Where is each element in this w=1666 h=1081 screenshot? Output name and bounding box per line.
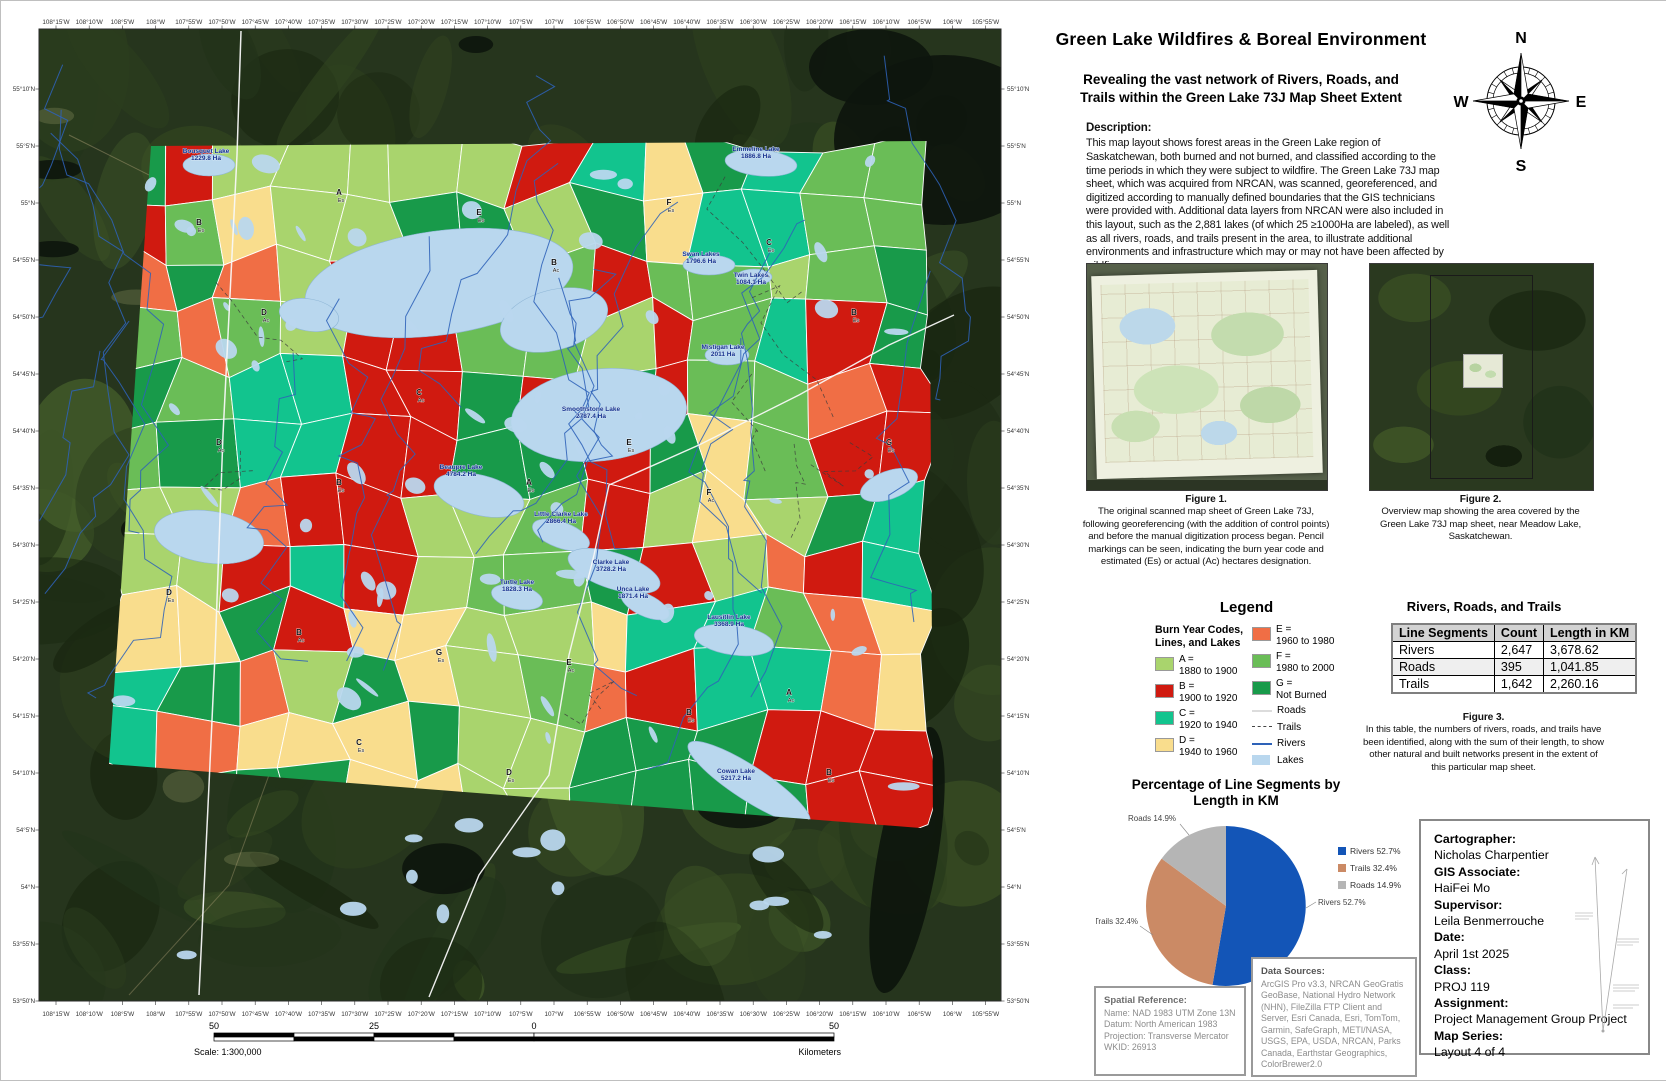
spatial-reference-line: Datum: North American 1983 xyxy=(1104,1019,1236,1030)
svg-text:E: E xyxy=(566,658,572,667)
svg-text:54°10'N: 54°10'N xyxy=(13,769,36,777)
svg-text:106°10'W: 106°10'W xyxy=(872,18,899,26)
svg-text:54°20'N: 54°20'N xyxy=(1007,655,1030,663)
svg-text:50: 50 xyxy=(209,1021,219,1031)
svg-text:E: E xyxy=(626,438,632,447)
svg-text:D: D xyxy=(261,308,267,317)
svg-text:A: A xyxy=(786,688,792,697)
svg-text:105°55'W: 105°55'W xyxy=(972,1010,999,1018)
legend-line-sample xyxy=(1252,706,1272,716)
svg-text:D: D xyxy=(506,768,512,777)
svg-text:25: 25 xyxy=(369,1021,379,1031)
main-map: BEsDAcAEsEEsBAcFEsCEsBEsGEsDAcBEsCAcAEsE… xyxy=(9,15,1035,1019)
svg-text:107°10'W: 107°10'W xyxy=(474,1010,501,1018)
svg-text:108°15'W: 108°15'W xyxy=(42,18,69,26)
svg-text:Es: Es xyxy=(688,718,695,724)
legend-item-G: G =Not Burned xyxy=(1252,678,1344,701)
legend-col2: E =1960 to 1980F =1980 to 2000G =Not Bur… xyxy=(1252,624,1344,771)
svg-text:106°30'W: 106°30'W xyxy=(740,1010,767,1018)
svg-text:107°30'W: 107°30'W xyxy=(341,18,368,26)
table-cell: 395 xyxy=(1494,659,1543,676)
pie-legend-label: Roads 14.9% xyxy=(1350,880,1401,890)
legend-subtitle: Burn Year Codes, Lines, and Lakes xyxy=(1155,624,1251,650)
svg-text:106°20'W: 106°20'W xyxy=(806,1010,833,1018)
pie-legend-item: Rivers 52.7% xyxy=(1338,846,1418,856)
svg-text:106°25'W: 106°25'W xyxy=(773,1010,800,1018)
svg-text:1796.6 Ha: 1796.6 Ha xyxy=(686,258,716,265)
svg-text:50: 50 xyxy=(829,1021,839,1031)
compass-rose-icon: NSWE xyxy=(1446,17,1596,185)
svg-text:1229.8 Ha: 1229.8 Ha xyxy=(191,155,221,162)
credits-box: Cartographer:Nicholas CharpentierGIS Ass… xyxy=(1419,819,1650,1055)
table-header-cell: Line Segments xyxy=(1392,624,1494,642)
svg-text:E: E xyxy=(476,208,482,217)
svg-text:G: G xyxy=(886,438,892,447)
legend-line-trail: Trails xyxy=(1252,722,1344,734)
spatial-reference-line: WKID: 26913 xyxy=(1104,1042,1236,1053)
svg-text:54°5'N: 54°5'N xyxy=(1007,826,1026,834)
description-body: This map layout shows forest areas in th… xyxy=(1086,137,1454,273)
svg-text:108°15'W: 108°15'W xyxy=(42,1010,69,1018)
table-header-cell: Length in KM xyxy=(1544,624,1637,642)
page-subtitle-line1: Revealing the vast network of Rivers, Ro… xyxy=(1041,71,1441,89)
legend-line-lake: Lakes xyxy=(1252,755,1344,767)
svg-text:107°55'W: 107°55'W xyxy=(175,18,202,26)
svg-text:106°5'W: 106°5'W xyxy=(907,1010,931,1018)
svg-text:107°10'W: 107°10'W xyxy=(474,18,501,26)
svg-text:D: D xyxy=(166,588,172,597)
table-cell: Roads xyxy=(1392,659,1494,676)
svg-text:107°40'W: 107°40'W xyxy=(275,1010,302,1018)
svg-text:Bousquet Lake: Bousquet Lake xyxy=(183,148,230,155)
svg-text:107°25'W: 107°25'W xyxy=(374,18,401,26)
svg-text:107°15'W: 107°15'W xyxy=(441,18,468,26)
legend-item-C: C =1920 to 1940 xyxy=(1155,708,1251,731)
svg-text:54°55'N: 54°55'N xyxy=(1007,256,1030,264)
svg-text:Ac: Ac xyxy=(418,398,425,404)
legend-line-road: Roads xyxy=(1252,705,1344,717)
svg-text:54°45'N: 54°45'N xyxy=(1007,370,1030,378)
map-layout-page: BEsDAcAEsEEsBAcFEsCEsBEsGEsDAcBEsCAcAEsE… xyxy=(0,0,1666,1081)
legend-item-label: B =1900 to 1920 xyxy=(1179,681,1237,704)
legend-swatch xyxy=(1252,654,1271,668)
svg-text:107°45'W: 107°45'W xyxy=(242,1010,269,1018)
svg-text:53°55'N: 53°55'N xyxy=(13,940,36,948)
legend-swatch xyxy=(1155,657,1174,671)
svg-text:W: W xyxy=(1453,94,1469,111)
svg-text:54°50'N: 54°50'N xyxy=(1007,313,1030,321)
svg-text:Es: Es xyxy=(198,228,205,234)
svg-text:B: B xyxy=(551,258,557,267)
table-header-cell: Count xyxy=(1494,624,1543,642)
figure2-caption-title: Figure 2. xyxy=(1369,493,1592,506)
main-map-frame: BEsDAcAEsEEsBAcFEsCEsBEsGEsDAcBEsCAcAEsE… xyxy=(9,15,1035,1019)
svg-text:F: F xyxy=(707,488,712,497)
svg-text:E: E xyxy=(1576,94,1587,111)
spatial-reference-line: Projection: Transverse Mercator xyxy=(1104,1031,1236,1042)
svg-text:A: A xyxy=(526,478,532,487)
svg-text:53°50'N: 53°50'N xyxy=(13,997,36,1005)
svg-text:106°40'W: 106°40'W xyxy=(673,1010,700,1018)
svg-text:Ac: Ac xyxy=(788,698,795,704)
svg-text:106°45'W: 106°45'W xyxy=(640,18,667,26)
table-cell: 2,647 xyxy=(1494,642,1543,659)
figure2-mapsheet-thumbnail xyxy=(1463,354,1503,388)
svg-text:Ac: Ac xyxy=(553,268,560,274)
legend-line-sample xyxy=(1252,739,1272,749)
svg-text:106°55'W: 106°55'W xyxy=(574,18,601,26)
legend-swatch xyxy=(1155,684,1174,698)
svg-text:Ac: Ac xyxy=(298,638,305,644)
svg-text:55°N: 55°N xyxy=(21,199,36,207)
scale-bar: 5025050Scale: 1:300,000Kilometers xyxy=(186,1019,866,1068)
svg-text:Es: Es xyxy=(628,448,635,454)
pie-legend-swatch xyxy=(1338,847,1346,855)
svg-text:53°55'N: 53°55'N xyxy=(1007,940,1030,948)
svg-text:106°40'W: 106°40'W xyxy=(673,18,700,26)
svg-text:Es: Es xyxy=(888,448,895,454)
svg-text:107°20'W: 107°20'W xyxy=(408,18,435,26)
pie-chart-legend: Rivers 52.7%Trails 32.4%Roads 14.9% xyxy=(1338,846,1418,897)
svg-text:B: B xyxy=(851,308,857,317)
svg-text:B: B xyxy=(336,478,342,487)
svg-text:54°15'N: 54°15'N xyxy=(13,712,36,720)
svg-text:54°50'N: 54°50'N xyxy=(13,313,36,321)
legend-line-sample xyxy=(1252,722,1272,732)
svg-text:4784.2 Ha: 4784.2 Ha xyxy=(446,471,476,478)
legend-line-label: Trails xyxy=(1277,722,1301,734)
svg-text:107°40'W: 107°40'W xyxy=(275,18,302,26)
svg-text:107°W: 107°W xyxy=(545,18,564,26)
legend-item-label: F =1980 to 2000 xyxy=(1276,651,1334,674)
svg-text:54°55'N: 54°55'N xyxy=(13,256,36,264)
svg-text:Es: Es xyxy=(358,748,365,754)
svg-text:2866.4 Ha: 2866.4 Ha xyxy=(546,518,576,525)
svg-text:107°30'W: 107°30'W xyxy=(341,1010,368,1018)
pie-legend-swatch xyxy=(1338,881,1346,889)
pie-legend-label: Rivers 52.7% xyxy=(1350,846,1401,856)
svg-text:106°5'W: 106°5'W xyxy=(907,18,931,26)
svg-text:107°15'W: 107°15'W xyxy=(441,1010,468,1018)
table-cell: 1,642 xyxy=(1494,676,1543,694)
figure2-image xyxy=(1369,263,1594,491)
svg-text:Emmeline Lake: Emmeline Lake xyxy=(732,146,780,153)
data-sources-body: ArcGIS Pro v3.3, NRCAN GeoGratis GeoBase… xyxy=(1261,979,1407,1070)
svg-text:54°40'N: 54°40'N xyxy=(13,427,36,435)
legend-item-label: E =1960 to 1980 xyxy=(1276,624,1334,647)
data-sources-box: Data Sources: ArcGIS Pro v3.3, NRCAN Geo… xyxy=(1251,957,1417,1077)
svg-text:3728.2 Ha: 3728.2 Ha xyxy=(596,566,626,573)
svg-text:107°45'W: 107°45'W xyxy=(242,18,269,26)
svg-text:Es: Es xyxy=(668,208,675,214)
svg-text:Es: Es xyxy=(478,218,485,224)
legend-item-label: A =1880 to 1900 xyxy=(1179,654,1237,677)
svg-text:Es: Es xyxy=(168,598,175,604)
svg-text:Kilometers: Kilometers xyxy=(798,1047,841,1057)
svg-text:Swan Lakes: Swan Lakes xyxy=(682,251,720,258)
svg-text:0: 0 xyxy=(531,1021,536,1031)
svg-text:C: C xyxy=(766,238,772,247)
legend-swatch xyxy=(1155,738,1174,752)
legend-item-D: D =1940 to 1960 xyxy=(1155,735,1251,758)
svg-text:54°30'N: 54°30'N xyxy=(1007,541,1030,549)
table-cell: 3,678.62 xyxy=(1544,642,1637,659)
table-cell: 2,260.16 xyxy=(1544,676,1637,694)
svg-text:3368.9 Ha: 3368.9 Ha xyxy=(714,621,744,628)
svg-text:1871.4 Ha: 1871.4 Ha xyxy=(618,593,648,600)
line-segments-table: Line SegmentsCountLength in KMRivers2,64… xyxy=(1391,623,1637,694)
svg-text:1084.1 Ha: 1084.1 Ha xyxy=(736,279,766,286)
svg-text:2787.4 Ha: 2787.4 Ha xyxy=(576,413,606,420)
svg-text:54°45'N: 54°45'N xyxy=(13,370,36,378)
svg-text:107°5'W: 107°5'W xyxy=(509,18,533,26)
credits-value: Layout 4 of 4 xyxy=(1434,1044,1648,1060)
svg-text:107°50'W: 107°50'W xyxy=(208,1010,235,1018)
spatial-reference-box: Spatial Reference: Name: NAD 1983 UTM Zo… xyxy=(1094,986,1246,1076)
svg-text:Trails 32.4%: Trails 32.4% xyxy=(1096,917,1138,926)
table-row: Trails1,6422,260.16 xyxy=(1392,676,1636,694)
svg-text:107°5'W: 107°5'W xyxy=(509,1010,533,1018)
table-row: Roads3951,041.85 xyxy=(1392,659,1636,676)
svg-text:107°35'W: 107°35'W xyxy=(308,18,335,26)
pie-chart-title: Percentage of Line Segments by Length in… xyxy=(1116,777,1356,809)
svg-text:107°50'W: 107°50'W xyxy=(208,18,235,26)
svg-text:Ac: Ac xyxy=(218,448,225,454)
svg-text:107°25'W: 107°25'W xyxy=(374,1010,401,1018)
legend-title: Legend xyxy=(1149,599,1344,616)
svg-text:Es: Es xyxy=(528,488,535,494)
svg-text:Scale: 1:300,000: Scale: 1:300,000 xyxy=(194,1047,262,1057)
spatial-reference-line: Name: NAD 1983 UTM Zone 13N xyxy=(1104,1008,1236,1019)
figure3-caption-title: Figure 3. xyxy=(1361,711,1606,724)
declination-diagram-icon xyxy=(1573,835,1645,1045)
svg-text:Es: Es xyxy=(338,488,345,494)
pie-legend-swatch xyxy=(1338,864,1346,872)
svg-text:N: N xyxy=(1515,30,1527,47)
svg-text:2011 Ha: 2011 Ha xyxy=(711,351,736,358)
legend-item-label: G =Not Burned xyxy=(1276,678,1327,701)
svg-text:54°25'N: 54°25'N xyxy=(13,598,36,606)
table-header-row: Line SegmentsCountLength in KM xyxy=(1392,624,1636,642)
svg-text:106°15'W: 106°15'W xyxy=(839,18,866,26)
legend-swatch xyxy=(1252,627,1271,641)
svg-text:106°55'W: 106°55'W xyxy=(574,1010,601,1018)
svg-text:54°20'N: 54°20'N xyxy=(13,655,36,663)
svg-text:Smoothstone Lake: Smoothstone Lake xyxy=(562,406,621,413)
svg-text:Turtle Lake: Turtle Lake xyxy=(500,579,535,586)
svg-text:54°N: 54°N xyxy=(21,883,36,891)
figure3-caption: Figure 3. In this table, the numbers of … xyxy=(1361,711,1606,774)
svg-text:54°10'N: 54°10'N xyxy=(1007,769,1030,777)
svg-text:5217.2 Ha: 5217.2 Ha xyxy=(721,775,751,782)
svg-text:D: D xyxy=(216,438,222,447)
svg-text:Ac: Ac xyxy=(568,668,575,674)
description-block: Description: This map layout shows fores… xyxy=(1086,121,1454,273)
svg-text:B: B xyxy=(686,708,692,717)
svg-text:54°25'N: 54°25'N xyxy=(1007,598,1030,606)
table-cell: Rivers xyxy=(1392,642,1494,659)
svg-text:Rivers 52.7%: Rivers 52.7% xyxy=(1318,898,1366,907)
svg-text:Es: Es xyxy=(828,778,835,784)
svg-text:B: B xyxy=(826,768,832,777)
svg-text:Es: Es xyxy=(853,318,860,324)
svg-text:Beaupre Lake: Beaupre Lake xyxy=(440,464,483,471)
table-cell: Trails xyxy=(1392,676,1494,694)
legend-line-river: Rivers xyxy=(1252,738,1344,750)
svg-text:106°W: 106°W xyxy=(943,1010,962,1018)
svg-text:53°50'N: 53°50'N xyxy=(1007,997,1030,1005)
svg-text:54°35'N: 54°35'N xyxy=(1007,484,1030,492)
svg-text:C: C xyxy=(416,388,422,397)
legend-line-sample xyxy=(1252,755,1272,765)
table-row: Rivers2,6473,678.62 xyxy=(1392,642,1636,659)
svg-text:107°35'W: 107°35'W xyxy=(308,1010,335,1018)
svg-text:1886.8 Ha: 1886.8 Ha xyxy=(741,153,771,160)
page-title: Green Lake Wildfires & Boreal Environmen… xyxy=(1041,29,1441,50)
svg-text:106°35'W: 106°35'W xyxy=(706,18,733,26)
svg-text:54°15'N: 54°15'N xyxy=(1007,712,1030,720)
svg-text:107°20'W: 107°20'W xyxy=(408,1010,435,1018)
svg-text:107°W: 107°W xyxy=(545,1010,564,1018)
table-title: Rivers, Roads, and Trails xyxy=(1359,599,1609,614)
svg-text:Clarke Lake: Clarke Lake xyxy=(593,559,630,566)
svg-text:108°W: 108°W xyxy=(146,1010,165,1018)
svg-text:106°10'W: 106°10'W xyxy=(872,1010,899,1018)
svg-text:108°5'W: 108°5'W xyxy=(111,1010,135,1018)
svg-text:54°5'N: 54°5'N xyxy=(16,826,35,834)
svg-text:108°10'W: 108°10'W xyxy=(76,18,103,26)
svg-text:108°5'W: 108°5'W xyxy=(111,18,135,26)
spatial-reference-lines: Name: NAD 1983 UTM Zone 13NDatum: North … xyxy=(1104,1008,1236,1054)
pie-legend-item: Trails 32.4% xyxy=(1338,863,1418,873)
svg-text:106°30'W: 106°30'W xyxy=(740,18,767,26)
svg-text:G: G xyxy=(436,648,442,657)
svg-text:Roads 14.9%: Roads 14.9% xyxy=(1128,814,1176,823)
page-subtitle: Revealing the vast network of Rivers, Ro… xyxy=(1041,71,1441,106)
description-heading: Description: xyxy=(1086,121,1454,135)
legend-item-label: C =1920 to 1940 xyxy=(1179,708,1237,731)
svg-text:Cowan Lake: Cowan Lake xyxy=(717,768,755,775)
svg-text:55°10'N: 55°10'N xyxy=(1007,85,1030,93)
svg-text:1828.3 Ha: 1828.3 Ha xyxy=(502,586,532,593)
figure1-caption-title: Figure 1. xyxy=(1081,493,1331,506)
figure1-caption: Figure 1. The original scanned map sheet… xyxy=(1081,493,1331,569)
svg-text:Mistigan Lake: Mistigan Lake xyxy=(702,344,745,351)
svg-text:105°55'W: 105°55'W xyxy=(972,18,999,26)
svg-text:106°15'W: 106°15'W xyxy=(839,1010,866,1018)
svg-text:Little Clarke Lake: Little Clarke Lake xyxy=(534,511,588,518)
svg-text:F: F xyxy=(667,198,672,207)
legend-line-label: Lakes xyxy=(1277,755,1304,767)
svg-text:106°25'W: 106°25'W xyxy=(773,18,800,26)
spatial-reference-heading: Spatial Reference: xyxy=(1104,995,1236,1006)
svg-text:106°50'W: 106°50'W xyxy=(607,18,634,26)
svg-text:Es: Es xyxy=(338,198,345,204)
svg-text:55°N: 55°N xyxy=(1007,199,1022,207)
svg-text:Unca Lake: Unca Lake xyxy=(617,586,650,593)
svg-text:106°20'W: 106°20'W xyxy=(806,18,833,26)
svg-text:108°10'W: 108°10'W xyxy=(76,1010,103,1018)
pie-legend-label: Trails 32.4% xyxy=(1350,863,1397,873)
svg-text:Ac: Ac xyxy=(708,498,715,504)
legend-item-B: B =1900 to 1920 xyxy=(1155,681,1251,704)
svg-text:106°45'W: 106°45'W xyxy=(640,1010,667,1018)
svg-text:S: S xyxy=(1516,158,1527,175)
svg-text:B: B xyxy=(296,628,302,637)
svg-text:106°35'W: 106°35'W xyxy=(706,1010,733,1018)
svg-text:108°W: 108°W xyxy=(146,18,165,26)
legend-item-A: A =1880 to 1900 xyxy=(1155,654,1251,677)
svg-text:Es: Es xyxy=(438,658,445,664)
svg-text:54°40'N: 54°40'N xyxy=(1007,427,1030,435)
svg-text:106°W: 106°W xyxy=(943,18,962,26)
svg-text:55°10'N: 55°10'N xyxy=(13,85,36,93)
legend-item-label: D =1940 to 1960 xyxy=(1179,735,1237,758)
svg-text:Es: Es xyxy=(508,778,515,784)
svg-text:B: B xyxy=(196,218,202,227)
svg-text:54°N: 54°N xyxy=(1007,883,1022,891)
svg-text:54°35'N: 54°35'N xyxy=(13,484,36,492)
figure1-image xyxy=(1086,263,1328,491)
svg-text:54°30'N: 54°30'N xyxy=(13,541,36,549)
svg-text:C: C xyxy=(356,738,362,747)
legend-line-label: Rivers xyxy=(1277,738,1305,750)
page-subtitle-line2: Trails within the Green Lake 73J Map She… xyxy=(1041,89,1441,107)
svg-text:Twin Lakes: Twin Lakes xyxy=(734,272,769,279)
legend-swatch xyxy=(1155,711,1174,725)
legend-col1: Burn Year Codes, Lines, and Lakes A =188… xyxy=(1155,624,1251,762)
svg-text:106°50'W: 106°50'W xyxy=(607,1010,634,1018)
figure1-caption-text: The original scanned map sheet of Green … xyxy=(1081,506,1331,568)
figure2-caption-text: Overview map showing the area covered by… xyxy=(1369,506,1592,543)
svg-text:Lausitlin Lake: Lausitlin Lake xyxy=(707,614,751,621)
legend-line-label: Roads xyxy=(1277,705,1306,717)
svg-text:107°55'W: 107°55'W xyxy=(175,1010,202,1018)
legend-swatch xyxy=(1252,681,1271,695)
legend: Legend Burn Year Codes, Lines, and Lakes… xyxy=(1149,599,1344,774)
svg-text:55°5'N: 55°5'N xyxy=(16,142,35,150)
svg-text:Ac: Ac xyxy=(263,318,270,324)
legend-item-E: E =1960 to 1980 xyxy=(1252,624,1344,647)
svg-text:A: A xyxy=(336,188,342,197)
figure2-caption: Figure 2. Overview map showing the area … xyxy=(1369,493,1592,544)
figure1-scanned-sheet xyxy=(1091,270,1323,479)
svg-text:Es: Es xyxy=(768,248,775,254)
pie-legend-item: Roads 14.9% xyxy=(1338,880,1418,890)
legend-item-F: F =1980 to 2000 xyxy=(1252,651,1344,674)
table-cell: 1,041.85 xyxy=(1544,659,1637,676)
svg-text:55°5'N: 55°5'N xyxy=(1007,142,1026,150)
data-sources-heading: Data Sources: xyxy=(1261,966,1407,977)
figure3-caption-text: In this table, the numbers of rivers, ro… xyxy=(1361,724,1606,774)
